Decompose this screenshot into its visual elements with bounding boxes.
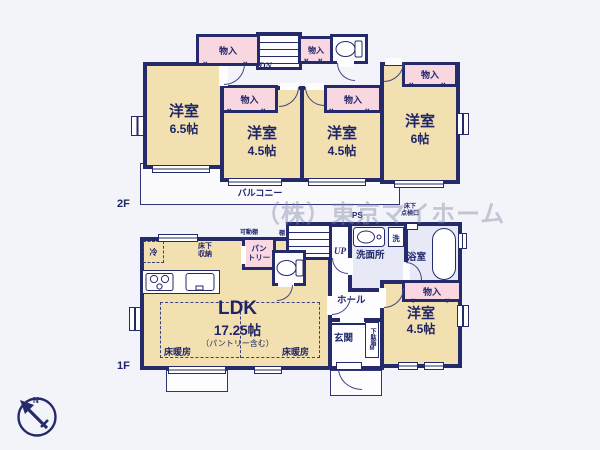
door-arc bbox=[337, 63, 355, 81]
fold-door-icon: ∨ bbox=[444, 298, 451, 304]
fold-door-icon: ∨ bbox=[328, 108, 335, 114]
fridge-space: 冷 bbox=[143, 241, 164, 263]
bathtub-icon bbox=[432, 228, 456, 280]
closet-label: 物入 bbox=[421, 68, 439, 81]
washroom-label: 洗面所 bbox=[356, 247, 385, 261]
door-opening bbox=[241, 246, 246, 264]
window bbox=[254, 366, 282, 374]
window bbox=[457, 305, 469, 327]
closet-label: 物入 bbox=[219, 44, 237, 57]
floor-label-1f: 1F bbox=[117, 360, 130, 372]
room-name: 洋室 bbox=[384, 304, 458, 322]
ldk-label: LDK 17.25帖 （パントリー含む） bbox=[175, 297, 300, 350]
room-name: 洋室 bbox=[222, 124, 302, 144]
window bbox=[457, 113, 469, 135]
closet-label: 物入 bbox=[308, 45, 324, 56]
window bbox=[394, 180, 444, 188]
room-name: 洋室 bbox=[145, 102, 223, 122]
window bbox=[158, 234, 198, 242]
pantry: パン トリー bbox=[242, 237, 276, 270]
pantry-label: パン トリー bbox=[248, 245, 271, 262]
room-label: 洋室 4.5帖 bbox=[384, 304, 458, 338]
stairs-up-label: UP bbox=[334, 246, 346, 256]
room-label: 洋室 4.5帖 bbox=[222, 124, 302, 159]
fold-door-icon: ∨ bbox=[440, 82, 447, 88]
window bbox=[168, 366, 226, 374]
kitchen-counter bbox=[142, 270, 220, 294]
room-size: 6帖 bbox=[382, 132, 458, 148]
bathroom-label: 浴室 bbox=[407, 249, 426, 263]
room-size: 6.5帖 bbox=[145, 122, 223, 138]
fold-door-icon: ∨ bbox=[303, 58, 310, 64]
room-name: 洋室 bbox=[302, 124, 382, 144]
room-size: 4.5帖 bbox=[222, 144, 302, 160]
floor-label-2f: 2F bbox=[117, 198, 130, 210]
front-door bbox=[336, 362, 362, 370]
window bbox=[228, 178, 282, 186]
window bbox=[424, 362, 444, 370]
floor-heating-label: 床暖房 bbox=[282, 345, 309, 358]
stairs-dn-label: DN bbox=[259, 61, 272, 71]
closet-label: 物入 bbox=[423, 285, 441, 298]
shelf-label: 棚 bbox=[279, 228, 285, 237]
room-size: 4.5帖 bbox=[384, 322, 458, 338]
door-opening bbox=[340, 317, 364, 322]
entrance-step-line bbox=[332, 323, 365, 325]
compass-icon: N bbox=[14, 394, 60, 440]
watermark: （株）東京マイホーム bbox=[256, 194, 505, 229]
shoe-cabinet-label: 下駄箱M bbox=[369, 328, 375, 352]
room-size: 4.5帖 bbox=[302, 144, 382, 160]
ldk-size: 17.25帖 bbox=[175, 322, 300, 340]
ldk-name: LDK bbox=[175, 297, 300, 322]
compass-north-label: N bbox=[33, 396, 39, 405]
fold-door-icon: ∨ bbox=[317, 58, 324, 64]
fold-door-icon: ∨ bbox=[242, 61, 249, 67]
window bbox=[458, 233, 467, 249]
toilet-icon bbox=[334, 38, 364, 60]
window bbox=[129, 307, 141, 331]
washer-space: 洗 bbox=[388, 227, 404, 247]
fridge-label: 冷 bbox=[150, 248, 158, 257]
fold-door-icon: ∨ bbox=[260, 108, 267, 114]
toilet-icon bbox=[275, 257, 305, 279]
washer-label: 洗 bbox=[392, 234, 400, 243]
floor-heating-label: 床暖房 bbox=[164, 345, 191, 358]
window bbox=[308, 178, 366, 186]
floor-plan: 物入 物入 物入 物入 物入 DN 洋室 6.5帖 洋室 4.5帖 洋室 4.5… bbox=[0, 0, 600, 450]
fold-door-icon: ∨ bbox=[226, 108, 233, 114]
window bbox=[152, 165, 210, 173]
washbasin-icon bbox=[353, 227, 385, 247]
room-name: 洋室 bbox=[382, 112, 458, 132]
fold-door-icon: ∨ bbox=[202, 61, 209, 67]
room-label: 洋室 6帖 bbox=[382, 112, 458, 147]
window bbox=[398, 362, 418, 370]
fold-door-icon: ∨ bbox=[408, 82, 415, 88]
underfloor-storage-label: 床下 収納 bbox=[190, 243, 220, 260]
closet-label: 物入 bbox=[240, 93, 258, 106]
entrance-label: 玄関 bbox=[334, 330, 353, 344]
shoe-cabinet: 下駄箱M bbox=[365, 322, 379, 358]
fold-door-icon: ∨ bbox=[364, 108, 371, 114]
room-label: 洋室 4.5帖 bbox=[302, 124, 382, 159]
closet-label: 物入 bbox=[344, 93, 362, 106]
room-label: 洋室 6.5帖 bbox=[145, 102, 223, 137]
window bbox=[131, 116, 144, 136]
fold-door-icon: ∨ bbox=[410, 298, 417, 304]
